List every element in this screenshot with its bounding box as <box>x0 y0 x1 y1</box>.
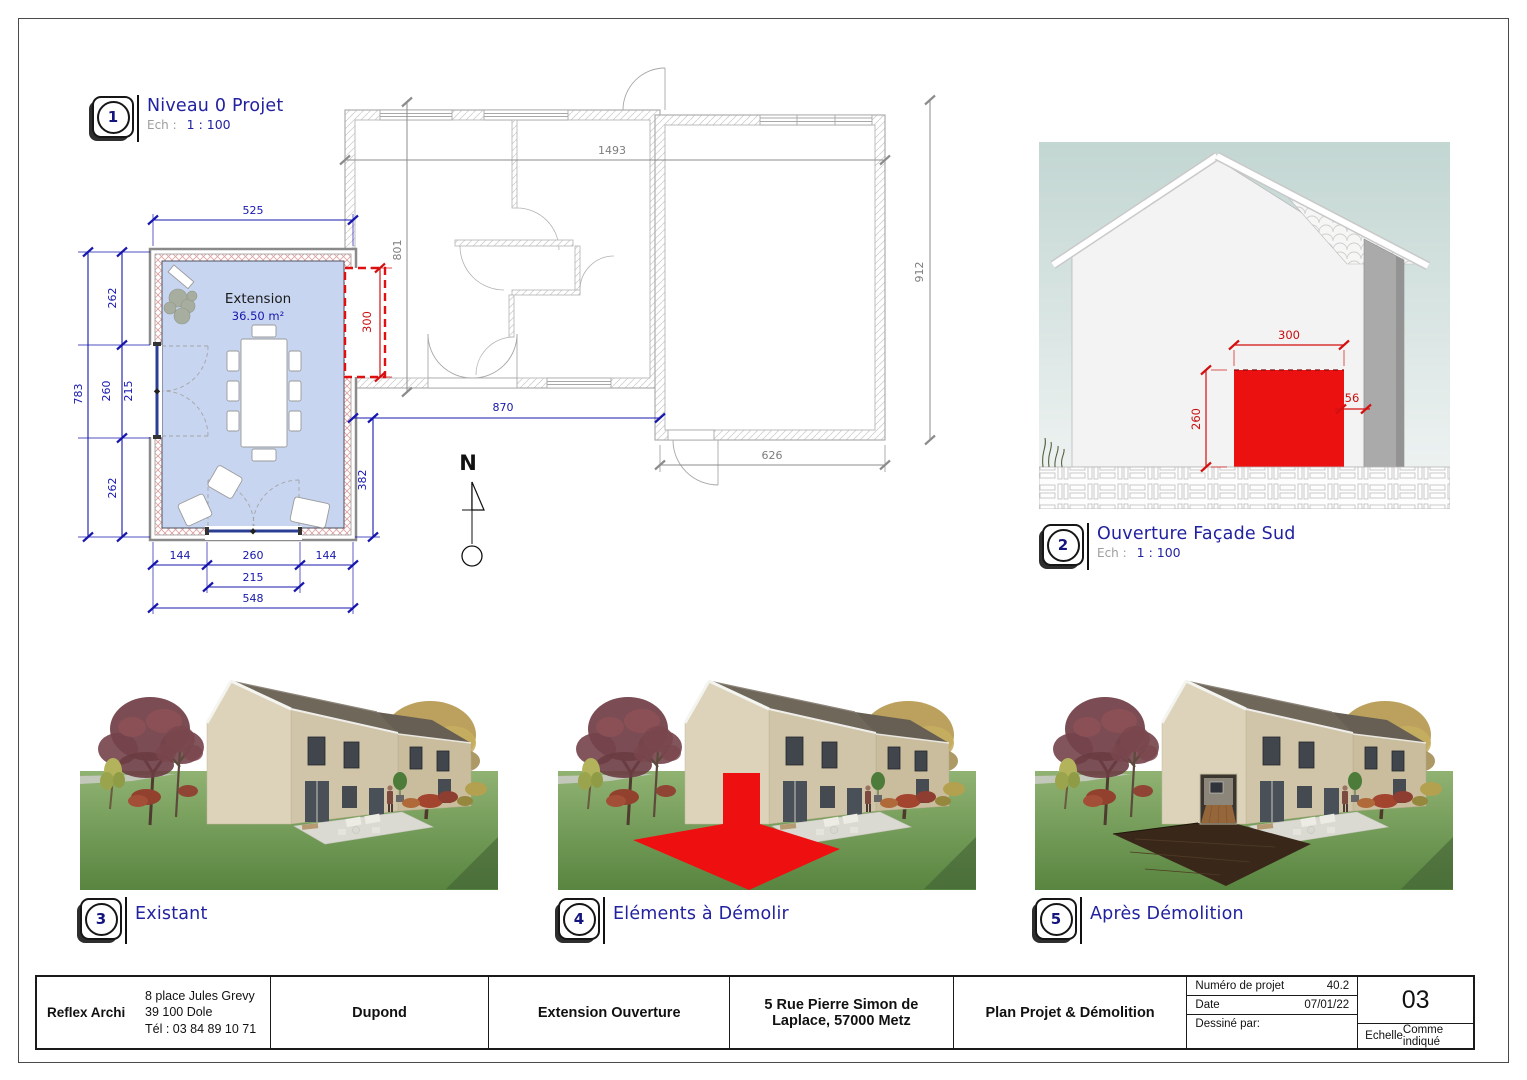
scale-row: Echelle Comme indiqué <box>1358 1024 1473 1048</box>
dim-626: 626 <box>762 449 783 462</box>
render-existant <box>80 677 498 890</box>
company-address: 8 place Jules Grevy 39 100 Dole Tél : 03… <box>139 988 256 1037</box>
scale-label-2: Ech : <box>1097 546 1127 560</box>
dim-548: 548 <box>243 592 264 605</box>
viewport-title-3: 3 Existant <box>80 898 208 940</box>
viewport-number-3: 3 <box>85 903 118 936</box>
address-line-1: 8 place Jules Grevy <box>145 988 256 1004</box>
viewport-title-text-4: Eléments à Démolir <box>613 904 789 924</box>
scale-label-1: Ech : <box>147 118 177 132</box>
viewport-title-1: 1 Niveau 0 Projet Ech :1 : 100 <box>92 96 283 138</box>
viewport-title-text-2: Ouverture Façade Sud <box>1097 524 1296 544</box>
client-cell: Dupond <box>271 977 490 1048</box>
dim-1493: 1493 <box>598 144 626 157</box>
dim-783: 783 <box>72 384 85 405</box>
viewport-title-text-3: Existant <box>135 904 208 924</box>
viewport-symbol-1: 1 <box>92 96 134 138</box>
viewport-symbol-5: 5 <box>1035 898 1077 940</box>
project-info-cell: Numéro de projet 40.2 Date 07/01/22 Dess… <box>1187 977 1358 1048</box>
drawn-by-row: Dessiné par: <box>1187 1015 1357 1048</box>
date-label: Date <box>1195 999 1219 1011</box>
architect-cell: Reflex Archi 8 place Jules Grevy 39 100 … <box>37 977 271 1048</box>
viewport-title-text-1: Niveau 0 Projet <box>147 96 283 116</box>
dim-870: 870 <box>493 401 514 414</box>
dim-382: 382 <box>356 470 369 491</box>
project-number-label: Numéro de projet <box>1195 980 1284 992</box>
dim-elev-260: 260 <box>1189 408 1203 430</box>
echelle-value: Comme indiqué <box>1403 1024 1466 1048</box>
dim-opening-300: 300 <box>360 311 374 333</box>
wall-opening <box>1200 774 1237 824</box>
viewport-title-2: 2 Ouverture Façade Sud Ech :1 : 100 <box>1042 524 1296 566</box>
company-name: Reflex Archi <box>37 1005 139 1020</box>
dim-elev-56: 56 <box>1345 391 1360 405</box>
dim-260b: 260 <box>243 549 264 562</box>
dim-525: 525 <box>243 204 264 217</box>
viewport-number-2: 2 <box>1047 529 1080 562</box>
sheet-title: Plan Projet & Démolition <box>971 1005 1168 1021</box>
dim-262b: 262 <box>106 478 119 499</box>
title-block: Reflex Archi 8 place Jules Grevy 39 100 … <box>35 975 1475 1050</box>
north-label: N <box>459 451 477 475</box>
dim-elev-300: 300 <box>1278 328 1300 342</box>
room-area: 36.50 m² <box>232 309 284 323</box>
dim-144b: 144 <box>316 549 337 562</box>
dim-215a: 215 <box>122 381 135 402</box>
dim-801: 801 <box>391 240 404 261</box>
render-elements-a-demolir <box>558 677 976 890</box>
project-number-value: 40.2 <box>1327 980 1349 992</box>
viewport-symbol-4: 4 <box>558 898 600 940</box>
viewport-symbol-2: 2 <box>1042 524 1084 566</box>
location-cell: 5 Rue Pierre Simon de Laplace, 57000 Met… <box>730 977 954 1048</box>
sheet-title-cell: Plan Projet & Démolition <box>954 977 1188 1048</box>
elevation-drawing: 300 260 56 <box>1039 142 1450 509</box>
viewport-title-5: 5 Après Démolition <box>1035 898 1244 940</box>
dim-260: 260 <box>100 381 113 402</box>
date-row: Date 07/01/22 <box>1187 996 1357 1015</box>
viewport-scale-1: Ech :1 : 100 <box>147 117 283 132</box>
viewport-scale-2: Ech :1 : 100 <box>1097 545 1296 560</box>
viewport-symbol-3: 3 <box>80 898 122 940</box>
echelle-label: Echelle <box>1365 1030 1403 1042</box>
viewport-number-4: 4 <box>563 903 596 936</box>
render-apres-demolition <box>1035 677 1453 890</box>
project-cell: Extension Ouverture <box>489 977 730 1048</box>
demolition-opening: 300 <box>345 264 392 382</box>
sheet-number: 03 <box>1358 977 1473 1024</box>
elevation-opening <box>1234 370 1344 467</box>
sheet-number-cell: 03 Echelle Comme indiqué <box>1358 977 1473 1048</box>
dim-262a: 262 <box>106 288 119 309</box>
drawn-by-label: Dessiné par: <box>1195 1018 1260 1030</box>
date-value: 07/01/22 <box>1304 999 1349 1011</box>
project-name: Extension Ouverture <box>524 1005 695 1021</box>
dim-144a: 144 <box>170 549 191 562</box>
address-line-3: Tél : 03 84 89 10 71 <box>145 1021 256 1037</box>
pavement <box>1039 467 1450 509</box>
scale-value-1: 1 : 100 <box>187 117 231 132</box>
client-name: Dupond <box>338 1005 421 1021</box>
dim-215b: 215 <box>243 571 264 584</box>
viewport-title-4: 4 Eléments à Démolir <box>558 898 789 940</box>
main-house-plan <box>345 68 885 485</box>
extension-room: Extension 36.50 m² <box>148 249 356 540</box>
scale-value-2: 1 : 100 <box>1137 545 1181 560</box>
drawing-sheet: Extension 36.50 m² 300 1493 801 912 626 … <box>0 0 1527 1080</box>
north-arrow: N <box>459 451 484 566</box>
viewport-title-text-5: Après Démolition <box>1090 904 1244 924</box>
dim-912: 912 <box>913 262 926 283</box>
room-name: Extension <box>225 291 291 307</box>
address-line-2: 39 100 Dole <box>145 1004 256 1020</box>
project-number-row: Numéro de projet 40.2 <box>1187 977 1357 996</box>
viewport-number-1: 1 <box>97 101 130 134</box>
project-location: 5 Rue Pierre Simon de Laplace, 57000 Met… <box>730 997 953 1029</box>
viewport-number-5: 5 <box>1040 903 1073 936</box>
